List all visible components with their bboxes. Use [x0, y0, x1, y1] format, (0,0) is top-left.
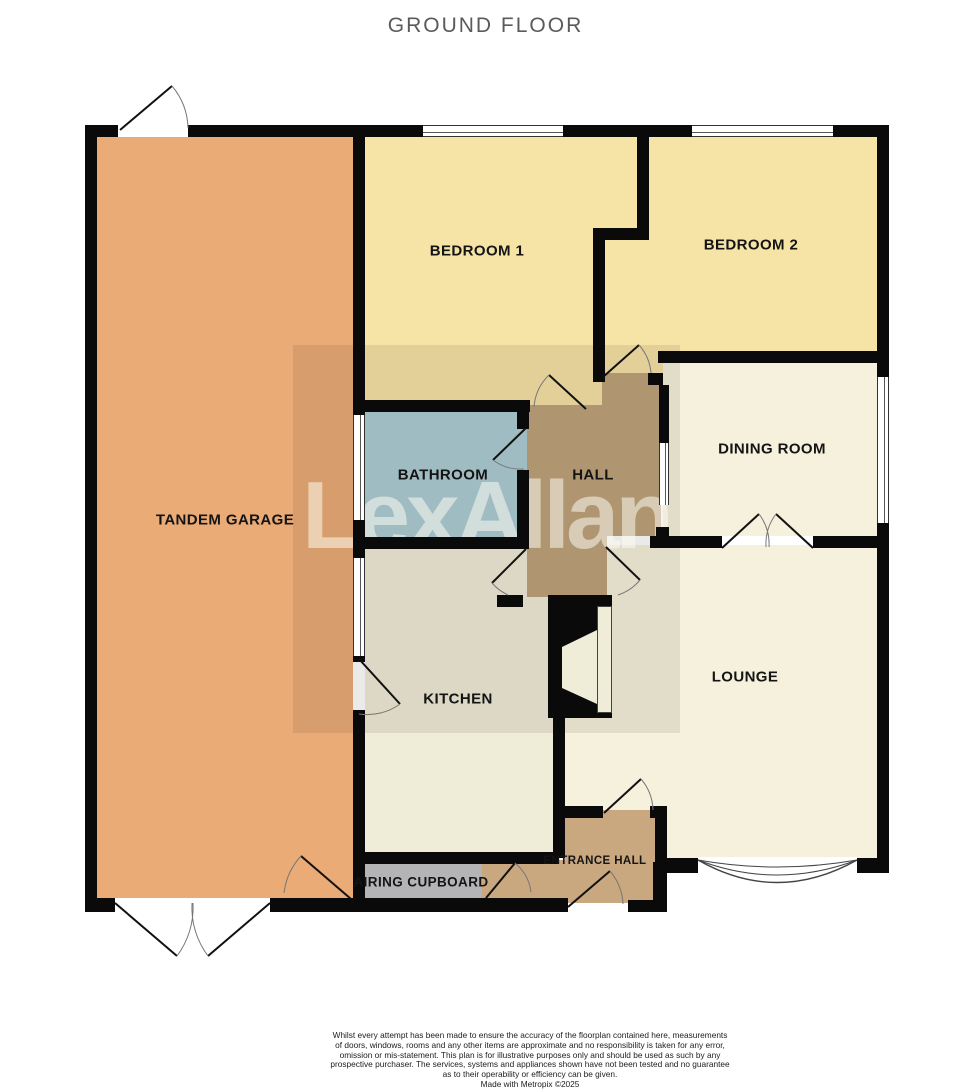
disclaimer: Whilst every attempt has been made to en… [330, 1031, 730, 1090]
label-lounge: LOUNGE [712, 669, 779, 686]
label-garage: TANDEM GARAGE [156, 512, 294, 529]
label-airing: AIRING CUPBOARD [353, 875, 488, 890]
door-and-bay-window-layer [0, 0, 971, 1080]
page-title: GROUND FLOOR [0, 14, 971, 38]
label-hall: HALL [572, 467, 614, 484]
label-dining: DINING ROOM [718, 441, 826, 458]
disclaimer-credit: Made with Metropix ©2025 [330, 1080, 730, 1090]
floorplan: LexAllan [0, 0, 971, 1080]
bay-window [698, 857, 857, 883]
label-bedroom1: BEDROOM 1 [430, 243, 524, 260]
label-kitchen: KITCHEN [423, 691, 492, 708]
label-bathroom: BATHROOM [398, 467, 488, 484]
label-bedroom2: BEDROOM 2 [704, 237, 798, 254]
fireplace-notch [562, 630, 597, 704]
label-entrance: ENTRANCE HALL [544, 855, 647, 867]
